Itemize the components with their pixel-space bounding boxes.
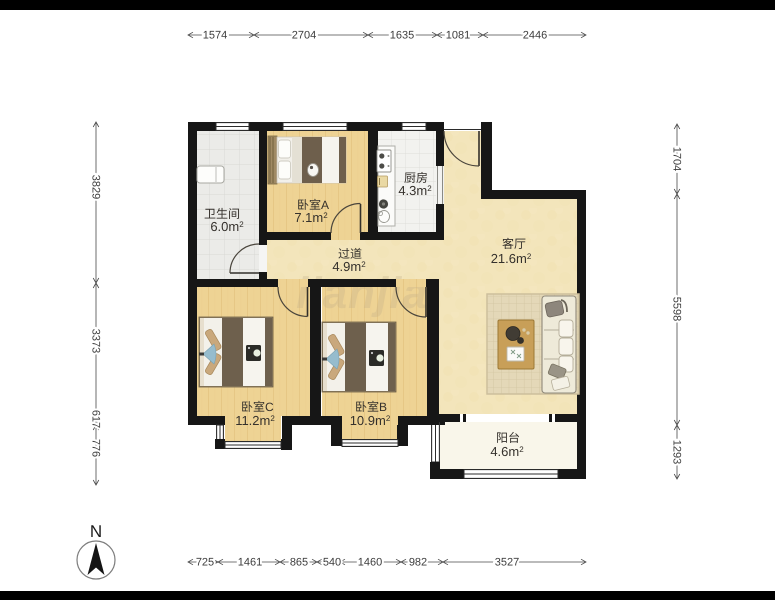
svg-text:2446: 2446: [523, 30, 547, 42]
svg-text:3527: 3527: [495, 557, 519, 569]
svg-text:N: N: [90, 522, 102, 541]
svg-text:11.2m2: 11.2m2: [235, 413, 275, 428]
svg-text:21.6m2: 21.6m2: [491, 251, 532, 266]
svg-text:7.1m2: 7.1m2: [294, 210, 328, 225]
svg-text:982: 982: [409, 557, 427, 569]
svg-text:1704: 1704: [671, 147, 683, 171]
svg-text:3829: 3829: [90, 175, 102, 199]
svg-text:1293: 1293: [671, 440, 683, 464]
svg-text:4.9m2: 4.9m2: [332, 259, 366, 274]
svg-text:1460: 1460: [358, 557, 382, 569]
svg-text:B: B: [379, 400, 387, 414]
svg-text:865: 865: [290, 557, 308, 569]
svg-text:1574: 1574: [203, 30, 227, 42]
svg-text:3373: 3373: [90, 329, 102, 353]
svg-text:C: C: [265, 400, 274, 414]
svg-text:776: 776: [90, 439, 102, 457]
svg-text:540: 540: [323, 557, 341, 569]
svg-text:5598: 5598: [671, 297, 683, 321]
svg-text:6.0m2: 6.0m2: [210, 219, 244, 234]
svg-text:1081: 1081: [446, 30, 470, 42]
svg-text:2704: 2704: [292, 30, 316, 42]
svg-text:617: 617: [90, 410, 102, 428]
svg-text:1635: 1635: [390, 30, 414, 42]
svg-text:1461: 1461: [238, 557, 262, 569]
svg-text:10.9m2: 10.9m2: [350, 413, 391, 428]
svg-text:725: 725: [196, 557, 214, 569]
svg-text:4.6m2: 4.6m2: [490, 444, 524, 459]
svg-text:4.3m2: 4.3m2: [398, 183, 432, 198]
